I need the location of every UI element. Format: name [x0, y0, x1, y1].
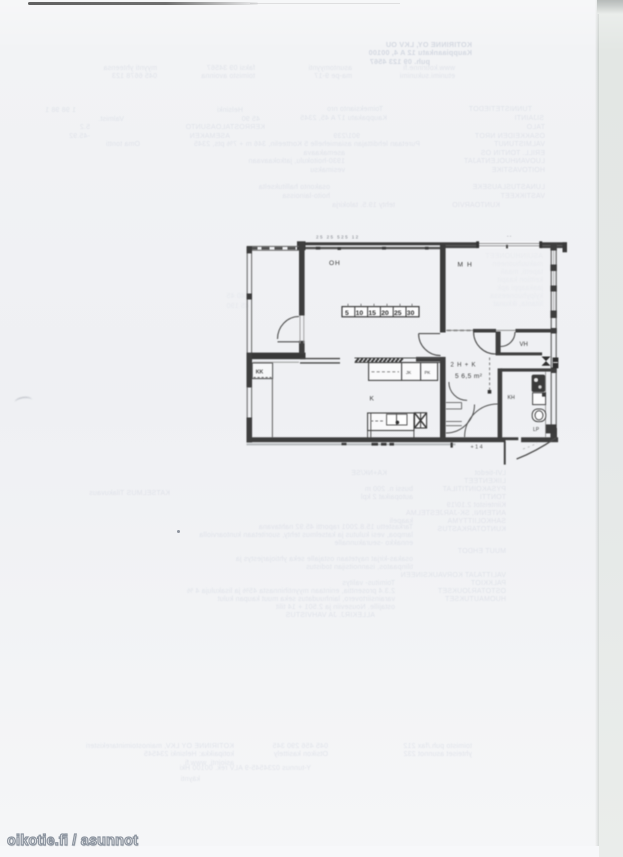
svg-text:KH: KH	[508, 395, 515, 401]
svg-text:- -: - -	[507, 234, 512, 239]
svg-text:JK: JK	[406, 370, 411, 375]
svg-text:PK: PK	[425, 370, 431, 375]
svg-text:MH: MH	[458, 262, 476, 269]
svg-text:OH: OH	[329, 260, 341, 267]
svg-text:25: 25	[394, 310, 402, 317]
svg-text:LP: LP	[533, 427, 540, 433]
svg-text:KK: KK	[256, 369, 264, 375]
svg-text:2 H + K: 2 H + K	[451, 363, 477, 369]
svg-text:10: 10	[356, 310, 364, 317]
svg-text:5 6,5 m²: 5 6,5 m²	[455, 373, 483, 380]
svg-text:15: 15	[368, 310, 376, 317]
svg-text:30: 30	[407, 310, 415, 317]
svg-text:25 25 525 12: 25 25 525 12	[316, 235, 360, 240]
svg-text:K: K	[370, 396, 375, 403]
svg-text:5: 5	[345, 310, 349, 317]
svg-text:VH: VH	[520, 342, 528, 348]
svg-text:+ 1 4: + 1 4	[471, 444, 483, 450]
svg-text:20: 20	[381, 310, 389, 317]
